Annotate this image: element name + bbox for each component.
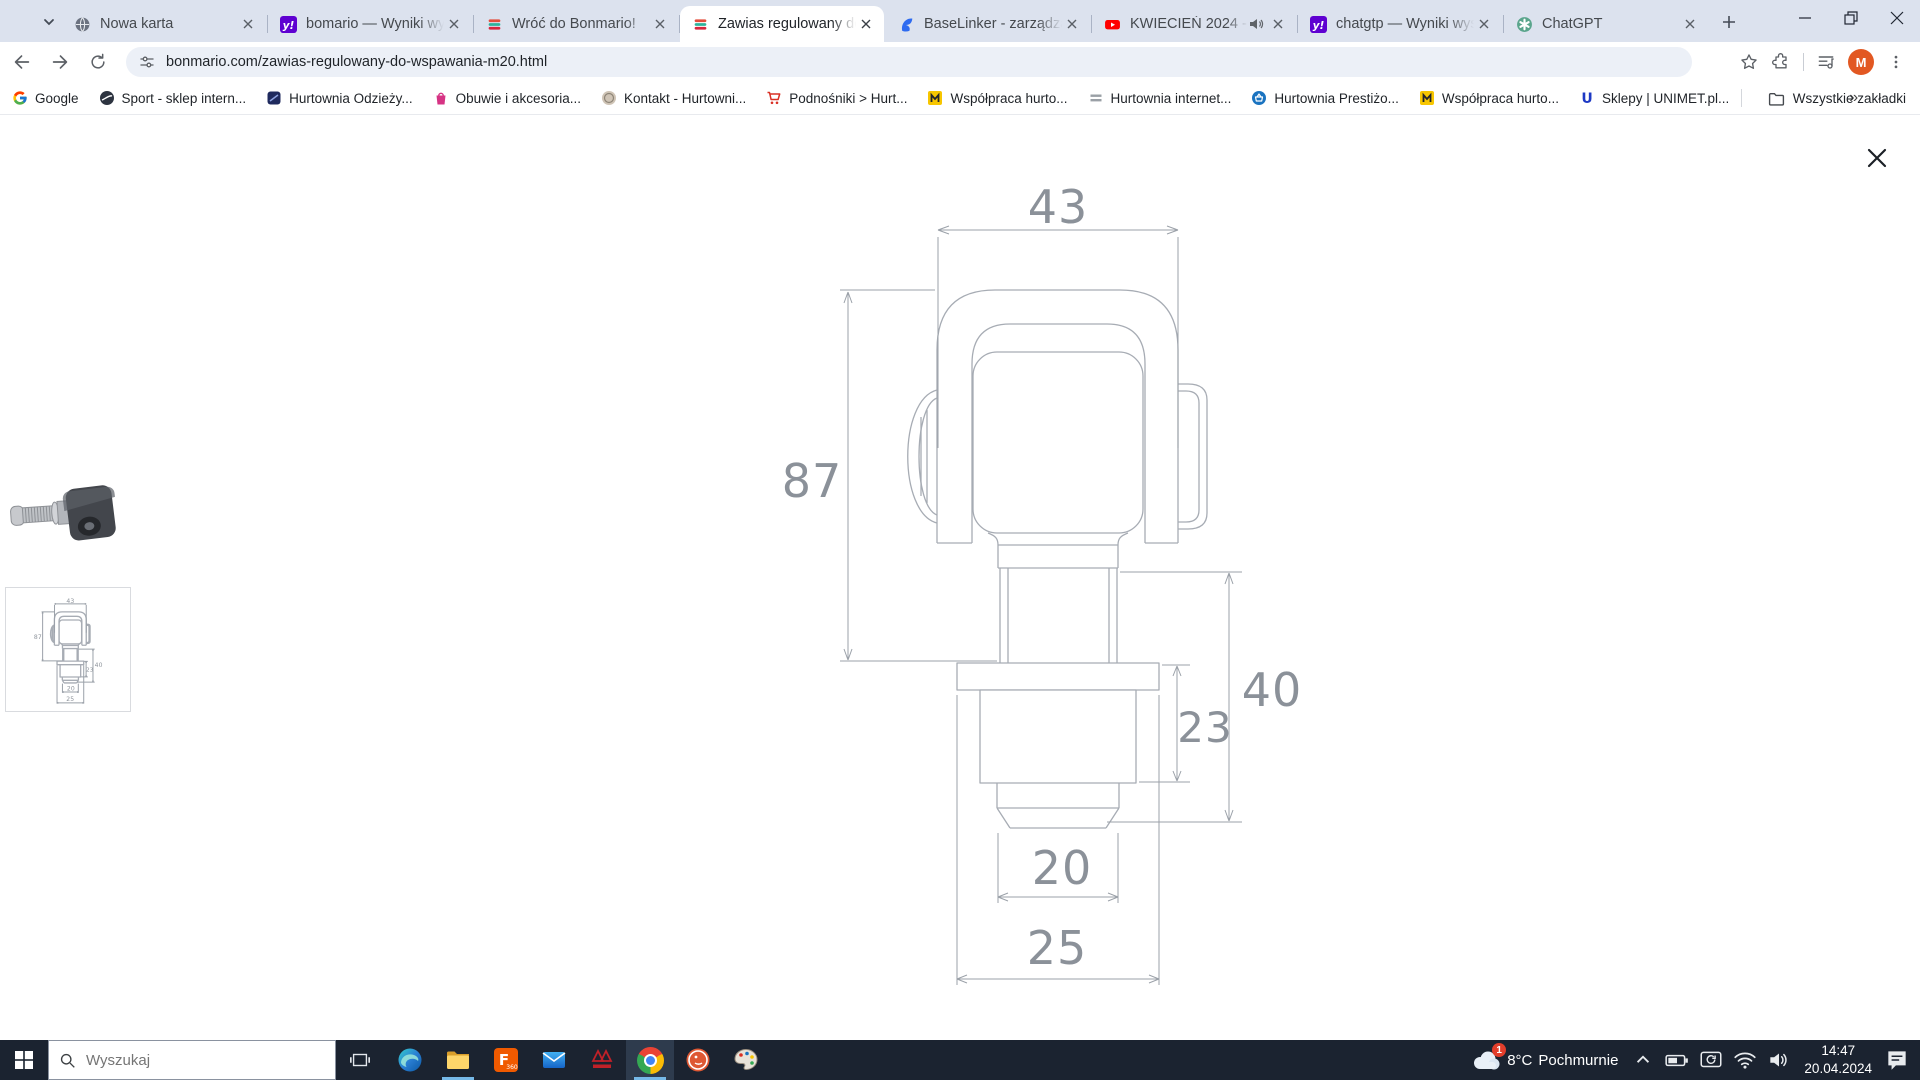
- media-controls-icon[interactable]: [1810, 46, 1842, 78]
- bookmark-kontakt[interactable]: Kontakt - Hurtowni...: [601, 90, 746, 106]
- svg-text:360: 360: [506, 1064, 518, 1071]
- taskbar-search-input[interactable]: [86, 1052, 325, 1069]
- back-button[interactable]: [6, 46, 38, 78]
- bookmark-label: Hurtownia Prestiżo...: [1274, 91, 1399, 106]
- text-logo-icon: [1088, 90, 1104, 106]
- bonmario-icon: [486, 16, 503, 33]
- site-info-tune-icon[interactable]: [138, 53, 156, 71]
- bookmarks-divider: [1741, 89, 1742, 107]
- tab-youtube-kwiecien[interactable]: KWIECIEŃ 2024 - NA: [1092, 6, 1296, 42]
- page-content: 43 87 40 23 20 25: [0, 115, 1920, 1040]
- bookmark-label: Współpraca hurto...: [950, 91, 1067, 106]
- dim-top-width: 43: [1028, 180, 1089, 234]
- drawing-thumbnail[interactable]: [5, 587, 131, 712]
- sport-shop-icon: [99, 90, 115, 106]
- tab-label: Nowa karta: [100, 16, 238, 32]
- bookmark-obuwie[interactable]: Obuwie i akcesoria...: [433, 90, 581, 106]
- technical-drawing: 43 87 40 23 20 25: [760, 140, 1320, 1010]
- weather-badge: 1: [1492, 1043, 1506, 1057]
- folder-icon: [1768, 90, 1785, 107]
- new-tab-button[interactable]: [1716, 9, 1742, 35]
- drawing-thumbnail-image: [31, 592, 105, 707]
- taskbar-app-megacad[interactable]: [578, 1040, 626, 1080]
- svg-text:y!: y!: [283, 18, 295, 31]
- window-controls: [1782, 0, 1920, 36]
- taskbar-app-mail[interactable]: [530, 1040, 578, 1080]
- fusion-360-icon: F360: [493, 1047, 519, 1073]
- system-tray: 1 8°C Pochmurnie 14:47 20.04.2: [1471, 1040, 1920, 1080]
- bookmark-label: Obuwie i akcesoria...: [456, 91, 581, 106]
- bookmark-label: Kontakt - Hurtowni...: [624, 91, 746, 106]
- google-g-icon: [12, 90, 28, 106]
- shopping-cart-icon: [766, 90, 782, 106]
- tab-chatgpt[interactable]: ChatGPT: [1504, 6, 1708, 42]
- address-bar[interactable]: [126, 47, 1692, 77]
- tab-search-chevron-icon[interactable]: [36, 9, 62, 35]
- restore-button[interactable]: [1828, 0, 1874, 36]
- taskbar-app-chrome[interactable]: [626, 1040, 674, 1080]
- clock-date: 20.04.2024: [1804, 1060, 1872, 1078]
- battery-icon[interactable]: [1660, 1040, 1694, 1080]
- dim-thread-dia: 20: [1032, 841, 1093, 895]
- taskbar: F360 1 8°C Pochmu: [0, 1040, 1920, 1080]
- url-input[interactable]: [166, 54, 1680, 70]
- tab-nowa-karta[interactable]: Nowa karta: [62, 6, 266, 42]
- volume-icon[interactable]: [1762, 1040, 1796, 1080]
- reload-button[interactable]: [82, 46, 114, 78]
- close-icon[interactable]: [1062, 14, 1082, 34]
- tab-label: Zawias regulowany do w: [718, 16, 856, 32]
- bookmark-wspolpraca-1[interactable]: Współpraca hurto...: [927, 90, 1067, 106]
- bookmark-star-icon[interactable]: [1733, 46, 1765, 78]
- shopping-bag-icon: [433, 90, 449, 106]
- close-icon[interactable]: [238, 14, 258, 34]
- tab-bomario-search[interactable]: y! bomario — Wyniki wyszu: [268, 6, 472, 42]
- unimet-u-icon: U: [1579, 90, 1595, 106]
- clothing-wholesale-icon: [266, 90, 282, 106]
- close-icon[interactable]: [650, 14, 670, 34]
- bonmario-icon: [692, 16, 709, 33]
- dim-stud-length: 40: [1242, 663, 1303, 717]
- megacad-icon: [589, 1047, 615, 1073]
- close-icon[interactable]: [1268, 14, 1288, 34]
- taskbar-search[interactable]: [48, 1040, 336, 1080]
- tab-label: Wróć do Bonmario!: [512, 16, 650, 32]
- toolbar-right: M: [1733, 46, 1912, 78]
- lightbox-close-icon[interactable]: [1862, 143, 1892, 173]
- wifi-icon[interactable]: [1728, 1040, 1762, 1080]
- bookmark-label: Współpraca hurto...: [1442, 91, 1559, 106]
- taskbar-app-file-explorer[interactable]: [434, 1040, 482, 1080]
- dim-plate-width: 25: [1027, 921, 1088, 975]
- browser-toolbar: M: [0, 42, 1920, 82]
- start-button[interactable]: [0, 1040, 48, 1080]
- cast-display-icon[interactable]: [1694, 1040, 1728, 1080]
- chrome-icon: [637, 1047, 664, 1074]
- tab-audio-speaker-icon[interactable]: [1248, 16, 1264, 32]
- tab-label: bomario — Wyniki wyszu: [306, 16, 444, 32]
- youtube-icon: [1104, 16, 1121, 33]
- chatgpt-icon: [1516, 16, 1533, 33]
- close-icon[interactable]: [444, 14, 464, 34]
- bookmark-label: Hurtownia Odzieży...: [289, 91, 413, 106]
- close-icon[interactable]: [1474, 14, 1494, 34]
- desktop-screen: Nowa karta y! bomario — Wyniki wyszu Wró…: [0, 0, 1920, 1080]
- profile-avatar[interactable]: M: [1848, 49, 1874, 75]
- search-icon: [59, 1052, 76, 1069]
- svg-text:U: U: [1581, 91, 1592, 106]
- bookmark-unimet[interactable]: U Sklepy | UNIMET.pl...: [1579, 90, 1729, 106]
- minimize-button[interactable]: [1782, 0, 1828, 36]
- svg-text:y!: y!: [1313, 18, 1325, 31]
- tabs-container: Nowa karta y! bomario — Wyniki wyszu Wró…: [62, 0, 1710, 42]
- action-center-icon[interactable]: [1880, 1040, 1914, 1080]
- coin-contact-icon: [601, 90, 617, 106]
- menu-dots-icon[interactable]: [1880, 46, 1912, 78]
- paint-palette-icon: [733, 1047, 759, 1073]
- bookmark-podnosniki[interactable]: Podnośniki > Hurt...: [766, 90, 907, 106]
- bookmark-google[interactable]: Google: [12, 90, 79, 106]
- toolbar-divider: [1803, 53, 1804, 71]
- tab-wroc-do-bonmario[interactable]: Wróć do Bonmario!: [474, 6, 678, 42]
- bookmark-sport[interactable]: Sport - sklep intern...: [99, 90, 247, 106]
- yellow-logo-icon: [927, 90, 943, 106]
- forward-button[interactable]: [44, 46, 76, 78]
- tab-label: KWIECIEŃ 2024 - NA: [1130, 16, 1248, 32]
- all-bookmarks-label: Wszystkie zakładki: [1793, 91, 1906, 106]
- tab-baselinker[interactable]: BaseLinker - zarządzanie: [886, 6, 1090, 42]
- bookmark-label: Sklepy | UNIMET.pl...: [1602, 91, 1729, 106]
- close-icon[interactable]: [856, 14, 876, 34]
- duckduckgo-icon: [685, 1047, 711, 1073]
- close-icon[interactable]: [1680, 14, 1700, 34]
- product-photo-thumbnail[interactable]: [8, 475, 120, 557]
- weather-temperature: 8°C: [1507, 1052, 1532, 1069]
- yahoo-icon: y!: [280, 16, 297, 33]
- baselinker-icon: [898, 16, 915, 33]
- bookmark-hurtownia-internet[interactable]: Hurtownia internet...: [1088, 90, 1232, 106]
- dim-nut-height: 23: [1177, 703, 1232, 752]
- tab-label: chatgtp — Wyniki wyszu: [1336, 16, 1474, 32]
- bookmark-label: Hurtownia internet...: [1111, 91, 1232, 106]
- basket-icon: [1251, 90, 1267, 106]
- tab-label: ChatGPT: [1542, 16, 1680, 32]
- weather-condition: Pochmurnie: [1538, 1052, 1618, 1069]
- taskbar-clock[interactable]: 14:47 20.04.2024: [1804, 1042, 1872, 1077]
- taskbar-app-fusion360[interactable]: F360: [482, 1040, 530, 1080]
- tab-zawias-active[interactable]: Zawias regulowany do w: [680, 6, 884, 42]
- tab-label: BaseLinker - zarządzanie: [924, 16, 1062, 32]
- close-window-button[interactable]: [1874, 0, 1920, 36]
- taskbar-app-duckduckgo[interactable]: [674, 1040, 722, 1080]
- dim-total-height: 87: [782, 454, 843, 508]
- edge-icon: [397, 1047, 423, 1073]
- tray-chevron-up-icon[interactable]: [1626, 1040, 1660, 1080]
- bookmarks-bar: Google Sport - sklep intern... Hurtownia…: [0, 82, 1920, 115]
- tab-chatgtp-search[interactable]: y! chatgtp — Wyniki wyszu: [1298, 6, 1502, 42]
- bookmark-hurtownia-odziezy[interactable]: Hurtownia Odzieży...: [266, 90, 413, 106]
- mail-icon: [541, 1047, 567, 1073]
- bookmark-wspolpraca-2[interactable]: Współpraca hurto...: [1419, 90, 1559, 106]
- taskbar-app-edge[interactable]: [386, 1040, 434, 1080]
- bookmark-label: Sport - sklep intern...: [122, 91, 247, 106]
- tab-strip: Nowa karta y! bomario — Wyniki wyszu Wró…: [0, 0, 1920, 42]
- weather-widget[interactable]: 1 8°C Pochmurnie: [1471, 1048, 1618, 1072]
- clock-time: 14:47: [1804, 1042, 1872, 1060]
- bookmark-label: Google: [35, 91, 79, 106]
- all-bookmarks-button[interactable]: Wszystkie zakładki: [1768, 90, 1906, 107]
- file-explorer-icon: [445, 1047, 471, 1073]
- yahoo-icon: y!: [1310, 16, 1327, 33]
- yellow-logo-icon: [1419, 90, 1435, 106]
- globe-icon: [74, 16, 91, 33]
- bookmark-label: Podnośniki > Hurt...: [789, 91, 907, 106]
- bookmark-prestizo[interactable]: Hurtownia Prestiżo...: [1251, 90, 1399, 106]
- taskbar-app-paint[interactable]: [722, 1040, 770, 1080]
- extensions-icon[interactable]: [1765, 46, 1797, 78]
- task-view-button[interactable]: [336, 1040, 384, 1080]
